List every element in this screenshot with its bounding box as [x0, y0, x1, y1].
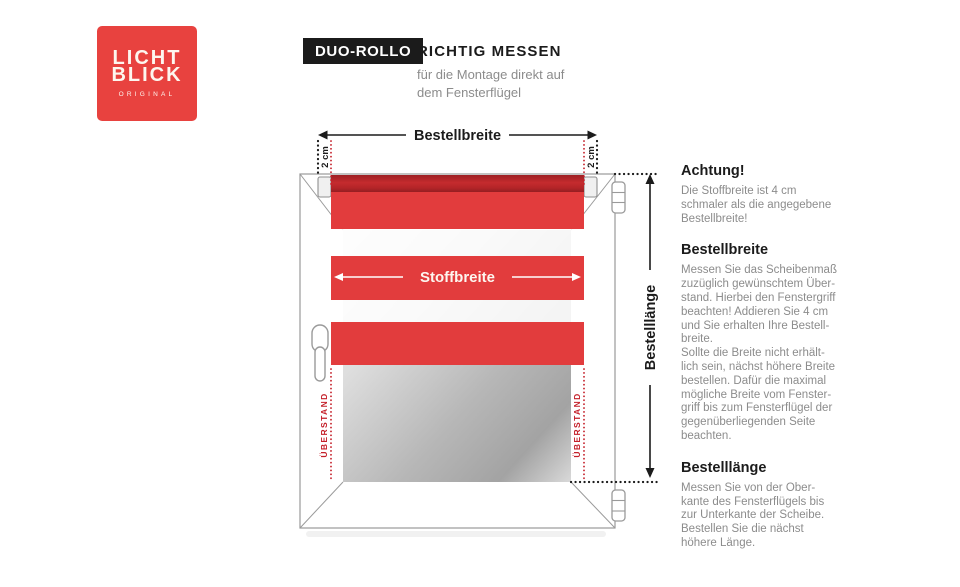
lichtblick-logo: LICHT BLICK ORIGINAL [97, 26, 197, 121]
hinge-bottom [612, 490, 625, 521]
logo-word-2: BLICK [111, 67, 182, 84]
section-body-bestellbreite: Messen Sie das Scheibenmaß zuzüglich gew… [681, 264, 881, 443]
page-title: RICHTIG MESSEN [417, 43, 562, 60]
overhang-label-left: ÜBERSTAND [319, 392, 329, 457]
section-body-achtung: Die Stoffbreite ist 4 cm schmaler als di… [681, 185, 881, 226]
order-length-arrow: Bestelllänge [643, 174, 659, 478]
order-length-label: Bestelllänge [643, 285, 659, 370]
window-measurement-illustration: Stoffbreite 2 cm 2 cm Bestellbreite ÜBER… [290, 123, 670, 557]
offset-label-left: 2 cm [320, 146, 331, 168]
window-handle [312, 325, 328, 381]
hinge-top [612, 182, 625, 213]
section-body-bestelllaenge: Messen Sie von der Ober- kante des Fenst… [681, 482, 881, 551]
overhang-label-right: ÜBERSTAND [572, 392, 582, 457]
sheer-stripe-1 [331, 229, 584, 256]
measurement-diagram: Stoffbreite 2 cm 2 cm Bestellbreite ÜBER… [290, 123, 670, 557]
order-width-arrow: Bestellbreite [318, 128, 597, 144]
section-heading-bestelllaenge: Bestelllänge [681, 460, 881, 476]
window-shadow [306, 531, 606, 537]
offset-label-right: 2 cm [586, 146, 597, 168]
order-width-label: Bestellbreite [414, 128, 501, 144]
roller-cassette [331, 175, 584, 192]
fabric-stripe-1 [331, 192, 584, 229]
section-heading-achtung: Achtung! [681, 163, 881, 179]
logo-tagline: ORIGINAL [119, 91, 176, 98]
fabric-width-label: Stoffbreite [420, 269, 495, 286]
section-heading-bestellbreite: Bestellbreite [681, 242, 881, 258]
instructions-column: Achtung! Die Stoffbreite ist 4 cm schmal… [681, 163, 881, 551]
product-badge: DUO-ROLLO [303, 38, 423, 64]
cassette-bracket-left [318, 177, 331, 197]
fabric-stripe-3 [331, 322, 584, 365]
cassette-bracket-right [584, 177, 597, 197]
sheer-stripe-2 [331, 300, 584, 322]
page-subtitle: für die Montage direkt auf dem Fensterfl… [417, 66, 564, 102]
